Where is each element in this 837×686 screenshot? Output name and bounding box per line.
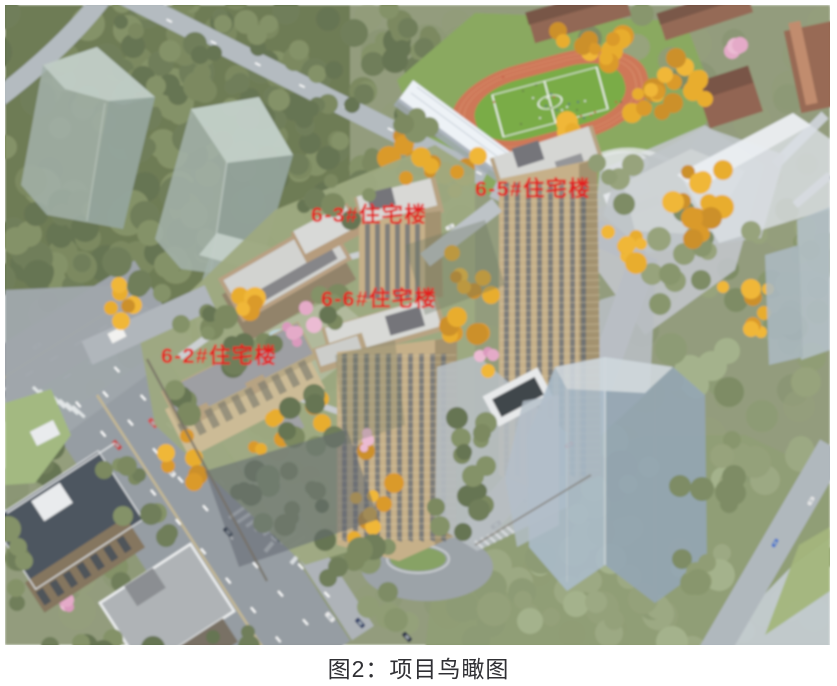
svg-text:6-6#住宅楼: 6-6#住宅楼 [321,286,437,311]
svg-text:6-5#住宅楼: 6-5#住宅楼 [475,176,591,201]
svg-text:6-2#住宅楼: 6-2#住宅楼 [161,343,277,368]
svg-text:6-3#住宅楼: 6-3#住宅楼 [311,202,427,227]
